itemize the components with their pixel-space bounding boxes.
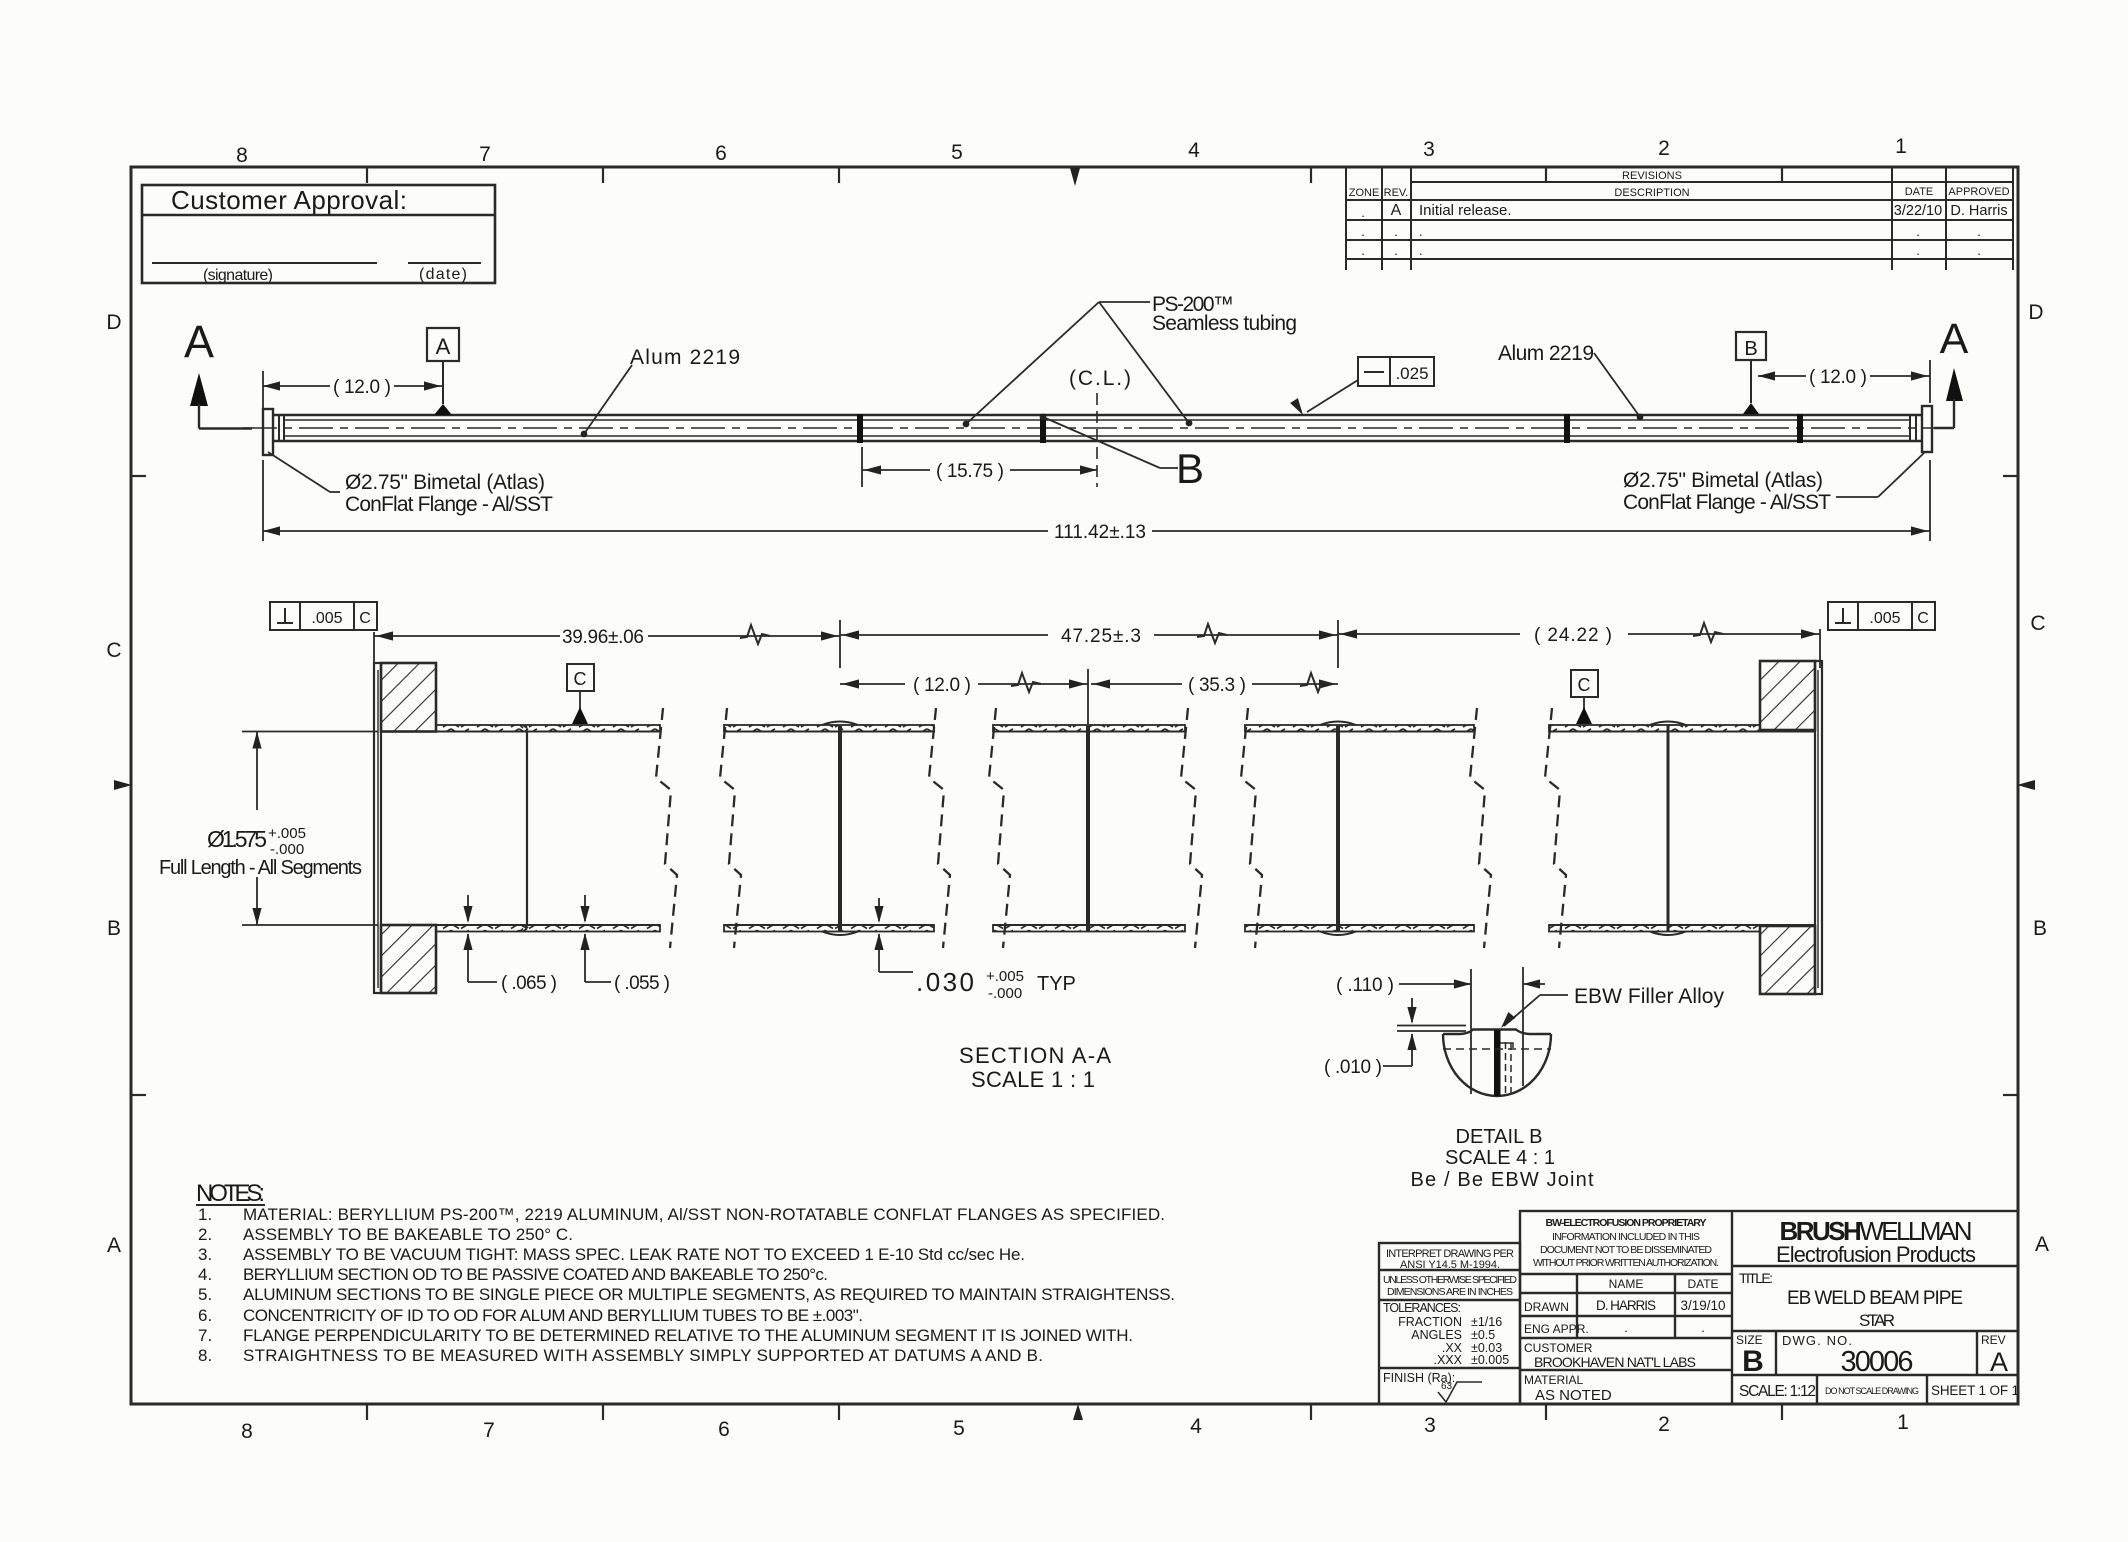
svg-text:±0.5: ±0.5 xyxy=(1471,1328,1495,1342)
svg-text:C: C xyxy=(2030,612,2045,635)
svg-text:( 35.3 ): ( 35.3 ) xyxy=(1188,675,1246,696)
svg-text:+.005: +.005 xyxy=(986,968,1024,985)
svg-text:SHEET 1 OF 1: SHEET 1 OF 1 xyxy=(1931,1383,2019,1398)
svg-text:B: B xyxy=(1744,338,1757,360)
svg-text:DETAIL B: DETAIL B xyxy=(1456,1126,1543,1148)
svg-text:C: C xyxy=(574,669,587,689)
svg-text:A: A xyxy=(1940,315,1969,363)
svg-text:( 24.22 ): ( 24.22 ) xyxy=(1534,625,1612,646)
svg-text:MATERIAL: MATERIAL xyxy=(1524,1373,1583,1387)
svg-text:7: 7 xyxy=(483,1419,495,1442)
svg-text:6: 6 xyxy=(718,1418,730,1441)
svg-text:BROOKHAVEN NAT'L LABS: BROOKHAVEN NAT'L LABS xyxy=(1534,1354,1696,1370)
svg-text:A: A xyxy=(1391,202,1402,219)
svg-text:WITHOUT PRIOR WRITTEN AUTHORIZ: WITHOUT PRIOR WRITTEN AUTHORIZATION. xyxy=(1533,1257,1719,1269)
svg-text:B: B xyxy=(107,917,121,940)
svg-text:4: 4 xyxy=(1188,139,1200,162)
svg-text:DATE: DATE xyxy=(1687,1277,1718,1291)
svg-text:Ø1.575: Ø1.575 xyxy=(207,826,267,852)
svg-text:( 12.0 ): ( 12.0 ) xyxy=(913,675,971,696)
svg-text:SCALE: 1:12: SCALE: 1:12 xyxy=(1739,1383,1816,1400)
svg-text:±0.005: ±0.005 xyxy=(1471,1353,1509,1367)
svg-text:7: 7 xyxy=(479,143,491,166)
svg-text:.: . xyxy=(1361,243,1365,258)
svg-text:-.000: -.000 xyxy=(270,841,304,858)
svg-text:CUSTOMER: CUSTOMER xyxy=(1524,1341,1593,1355)
svg-text:REV: REV xyxy=(1981,1333,2006,1347)
svg-text:Customer Approval:: Customer Approval: xyxy=(171,185,407,215)
svg-text:.: . xyxy=(1419,224,1423,239)
svg-text:6.: 6. xyxy=(198,1306,212,1325)
svg-text:Ø2.75" Bimetal (Atlas): Ø2.75" Bimetal (Atlas) xyxy=(345,471,545,494)
svg-text:ZONE: ZONE xyxy=(1349,187,1380,199)
svg-text:NOTES:: NOTES: xyxy=(196,1180,265,1207)
svg-text:B: B xyxy=(1176,445,1204,492)
svg-text:.: . xyxy=(1419,243,1423,258)
svg-text:1: 1 xyxy=(1897,1411,1909,1434)
svg-text:3/22/10: 3/22/10 xyxy=(1894,203,1942,219)
svg-text:APPROVED: APPROVED xyxy=(1948,186,2009,198)
svg-text:A: A xyxy=(107,1234,121,1257)
svg-text:.: . xyxy=(1701,1320,1705,1335)
svg-text:( 12.0 ): ( 12.0 ) xyxy=(1809,367,1867,388)
svg-text:111.42±.13: 111.42±.13 xyxy=(1054,522,1146,543)
svg-text:±1/16: ±1/16 xyxy=(1471,1315,1502,1329)
svg-text:(C.L.): (C.L.) xyxy=(1069,367,1131,390)
svg-text:.: . xyxy=(1361,205,1365,220)
svg-text:D: D xyxy=(2028,301,2043,324)
svg-text:Seamless tubing: Seamless tubing xyxy=(1152,312,1297,335)
svg-text:Alum 2219: Alum 2219 xyxy=(1498,342,1594,365)
svg-text:( .065 ): ( .065 ) xyxy=(501,973,557,994)
svg-text:BW-ELECTROFUSION PROPRIETARY: BW-ELECTROFUSION PROPRIETARY xyxy=(1546,1217,1707,1229)
svg-text:DOCUMENT NOT TO BE DISSEMINATE: DOCUMENT NOT TO BE DISSEMINATED xyxy=(1540,1244,1712,1256)
svg-text:DO NOT SCALE DRAWING: DO NOT SCALE DRAWING xyxy=(1825,1386,1919,1396)
svg-text:8: 8 xyxy=(241,1420,253,1443)
svg-text:EB WELD BEAM PIPE: EB WELD BEAM PIPE xyxy=(1787,1288,1963,1309)
svg-text:(date): (date) xyxy=(419,266,467,283)
svg-text:47.25±.3: 47.25±.3 xyxy=(1061,626,1141,647)
svg-text:.: . xyxy=(1361,224,1365,239)
svg-text:D. HARRIS: D. HARRIS xyxy=(1596,1298,1656,1313)
svg-text:FLANGE PERPENDICULARITY TO BE: FLANGE PERPENDICULARITY TO BE DETERMINED… xyxy=(243,1326,1133,1345)
svg-text:2: 2 xyxy=(1658,1413,1670,1436)
svg-text:4: 4 xyxy=(1190,1415,1202,1438)
svg-text:Alum 2219: Alum 2219 xyxy=(630,346,740,369)
svg-text:SCALE 1 : 1: SCALE 1 : 1 xyxy=(971,1067,1095,1092)
svg-text:FRACTION: FRACTION xyxy=(1398,1315,1462,1329)
svg-text:C: C xyxy=(1578,675,1591,695)
svg-text:3.: 3. xyxy=(198,1245,212,1264)
svg-text:3/19/10: 3/19/10 xyxy=(1680,1298,1725,1313)
svg-text:Be / Be EBW Joint: Be / Be EBW Joint xyxy=(1411,1169,1594,1191)
svg-text:C: C xyxy=(1917,610,1929,627)
svg-text:2.: 2. xyxy=(198,1225,212,1244)
svg-text:ASSEMBLY TO BE BAKEABLE TO 250: ASSEMBLY TO BE BAKEABLE TO 250° C. xyxy=(243,1225,573,1244)
svg-text:8.: 8. xyxy=(198,1346,212,1365)
svg-text:SCALE 4 : 1: SCALE 4 : 1 xyxy=(1445,1147,1555,1169)
svg-text:1.: 1. xyxy=(198,1205,212,1224)
svg-text:( .110 ): ( .110 ) xyxy=(1336,975,1394,996)
svg-text:STAR: STAR xyxy=(1859,1311,1895,1330)
svg-text:63: 63 xyxy=(1441,1381,1453,1392)
svg-text:(signature): (signature) xyxy=(203,267,273,284)
svg-text:C: C xyxy=(359,610,371,627)
svg-text:EBW Filler Alloy: EBW Filler Alloy xyxy=(1574,985,1725,1008)
svg-text:NAME: NAME xyxy=(1609,1277,1644,1291)
svg-text:UNLESS OTHERWISE SPECIFIED: UNLESS OTHERWISE SPECIFIED xyxy=(1383,1274,1517,1286)
svg-text:SECTION A-A: SECTION A-A xyxy=(959,1043,1111,1068)
svg-text:.: . xyxy=(1394,243,1398,258)
svg-text:A: A xyxy=(184,316,214,367)
svg-text:.005: .005 xyxy=(311,610,342,627)
svg-text:4.: 4. xyxy=(198,1265,212,1284)
svg-text:MATERIAL: BERYLLIUM PS-200™,: MATERIAL: BERYLLIUM PS-200™, 2219 ALUMIN… xyxy=(243,1205,1165,1224)
svg-text:7.: 7. xyxy=(198,1326,212,1345)
svg-text:TITLE:: TITLE: xyxy=(1739,1270,1773,1286)
svg-text:.: . xyxy=(1394,224,1398,239)
svg-text:INFORMATION INCLUDED IN THIS: INFORMATION INCLUDED IN THIS xyxy=(1552,1231,1700,1243)
svg-text:ConFlat Flange - Al/SST: ConFlat Flange - Al/SST xyxy=(1623,491,1831,514)
svg-text:C: C xyxy=(106,639,121,662)
svg-text:A: A xyxy=(2035,1233,2049,1256)
svg-text:Full Length - All Segments: Full Length - All Segments xyxy=(159,857,362,879)
svg-text:D. Harris: D. Harris xyxy=(1950,203,2007,219)
svg-text:6: 6 xyxy=(715,142,727,165)
svg-text:5.: 5. xyxy=(198,1285,212,1304)
svg-text:ANSI Y14.5 M-1994.: ANSI Y14.5 M-1994. xyxy=(1400,1259,1500,1271)
svg-text:AS NOTED: AS NOTED xyxy=(1535,1387,1612,1404)
svg-text:8: 8 xyxy=(236,144,248,167)
svg-text:.005: .005 xyxy=(1869,610,1900,627)
svg-text:A: A xyxy=(1990,1347,2008,1377)
svg-text:( .010 ): ( .010 ) xyxy=(1324,1057,1382,1078)
svg-text:.: . xyxy=(1916,243,1920,258)
svg-text:DIMENSIONS ARE IN INCHES: DIMENSIONS ARE IN INCHES xyxy=(1387,1286,1513,1298)
svg-text:B: B xyxy=(2033,917,2047,940)
svg-text:.025: .025 xyxy=(1395,364,1428,383)
svg-text:.: . xyxy=(1977,224,1981,239)
svg-text:( .055 ): ( .055 ) xyxy=(614,973,670,994)
svg-text:REV.: REV. xyxy=(1384,187,1409,199)
svg-text:.: . xyxy=(1977,243,1981,258)
svg-text:5: 5 xyxy=(953,1417,965,1440)
svg-text:A: A xyxy=(436,334,451,359)
svg-text:ANGLES: ANGLES xyxy=(1411,1328,1462,1342)
svg-text:-.000: -.000 xyxy=(988,985,1022,1002)
svg-text:3: 3 xyxy=(1424,1414,1436,1437)
svg-text:DRAWN: DRAWN xyxy=(1524,1300,1569,1314)
svg-text:+.005: +.005 xyxy=(268,825,306,842)
svg-text:.XXX: .XXX xyxy=(1434,1353,1463,1367)
svg-text:30006: 30006 xyxy=(1841,1346,1914,1378)
svg-text:( 15.75 ): ( 15.75 ) xyxy=(936,461,1004,482)
svg-text:ALUMINUM SECTIONS TO BE SINGLE: ALUMINUM SECTIONS TO BE SINGLE PIECE OR … xyxy=(243,1285,1175,1304)
svg-text:Initial release.: Initial release. xyxy=(1419,202,1512,219)
svg-text:D: D xyxy=(106,311,121,334)
svg-text:5: 5 xyxy=(951,141,963,164)
svg-text:Ø2.75" Bimetal (Atlas): Ø2.75" Bimetal (Atlas) xyxy=(1623,469,1823,492)
svg-text:REVISIONS: REVISIONS xyxy=(1622,170,1682,182)
svg-text:BERYLLIUM SECTION OD TO BE PAS: BERYLLIUM SECTION OD TO BE PASSIVE COATE… xyxy=(243,1265,828,1284)
svg-text:2: 2 xyxy=(1658,137,1670,160)
svg-text:.: . xyxy=(1916,224,1920,239)
svg-text:STRAIGHTNESS TO BE MEASURED WI: STRAIGHTNESS TO BE MEASURED WITH ASSEMBL… xyxy=(243,1346,1043,1365)
svg-text:1: 1 xyxy=(1895,135,1907,158)
svg-text:( 12.0 ): ( 12.0 ) xyxy=(333,377,391,398)
svg-text:CONCENTRICITY OF ID TO OD FOR: CONCENTRICITY OF ID TO OD FOR ALUM AND B… xyxy=(243,1306,863,1325)
svg-text:DATE: DATE xyxy=(1905,186,1934,198)
svg-text:39.96±.06: 39.96±.06 xyxy=(562,627,644,648)
svg-text:ConFlat Flange - Al/SST: ConFlat Flange - Al/SST xyxy=(345,493,553,516)
svg-text:B: B xyxy=(1742,1345,1764,1378)
svg-text:ENG APPR.: ENG APPR. xyxy=(1524,1322,1589,1336)
svg-text:ASSEMBLY TO BE VACUUM TIGHT: M: ASSEMBLY TO BE VACUUM TIGHT: MASS SPEC. … xyxy=(243,1245,1025,1264)
svg-text:3: 3 xyxy=(1423,138,1435,161)
svg-text:TYP: TYP xyxy=(1037,973,1076,995)
svg-text:TOLERANCES:: TOLERANCES: xyxy=(1383,1301,1461,1315)
svg-text:DESCRIPTION: DESCRIPTION xyxy=(1614,187,1689,199)
svg-text:Electrofusion Products: Electrofusion Products xyxy=(1776,1242,1976,1267)
svg-text:.: . xyxy=(1624,1320,1628,1335)
